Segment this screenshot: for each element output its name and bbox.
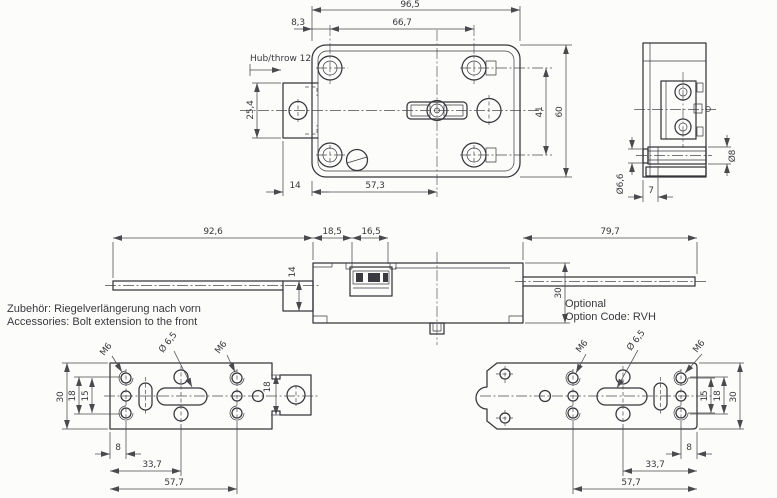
dim-front-extension: 79,7 bbox=[600, 227, 619, 237]
cover-screw bbox=[347, 150, 368, 171]
accessory-note: Zubehör: Riegelverlängerung nach vorn Ac… bbox=[7, 303, 201, 328]
plate-front-view: M6 Ø 6,5 M6 30 18 15 18 8 bbox=[56, 330, 318, 494]
dim-rod-length: 7 bbox=[648, 186, 654, 196]
note-option-code: Option Code: RVH bbox=[565, 311, 656, 323]
plate-front-holes bbox=[119, 370, 264, 421]
front-extension-rod bbox=[515, 277, 706, 286]
callout-thread-a: M6 bbox=[98, 341, 114, 358]
dim-segment-b: 16,5 bbox=[361, 227, 380, 237]
dim-rod-dia: Ø6,6 bbox=[615, 173, 626, 194]
top-view-dimensions: 96,5 8,3 66,7 Hub/throw 12 25,4 41 60 14 bbox=[246, 0, 572, 196]
label-throw: Hub/throw 12 bbox=[250, 54, 311, 64]
dim-segment-a: 18,5 bbox=[322, 227, 341, 237]
optional-note: Optional Option Code: RVH bbox=[565, 298, 656, 323]
dim-edge-offset: 8 bbox=[686, 443, 692, 453]
dim-mid-span: 33,7 bbox=[142, 460, 161, 470]
dim-edge-to-holes: 8,3 bbox=[291, 18, 305, 28]
connector-block bbox=[346, 263, 396, 296]
dim-overall-width: 96,5 bbox=[400, 0, 419, 10]
side-view-dimensions: Ø8 Ø6,6 7 bbox=[615, 135, 738, 202]
dim-bolt-height: 14 bbox=[288, 266, 298, 278]
dim-spindle-offset: 57,3 bbox=[365, 181, 384, 191]
callout-thread-a: M6 bbox=[574, 338, 590, 355]
dim-tab-height: 18 bbox=[263, 381, 273, 393]
note-accessory-de: Zubehör: Riegelverlängerung nach vorn bbox=[7, 303, 201, 315]
dim-hole-rows: 41 bbox=[535, 106, 545, 117]
callout-thread-b: M6 bbox=[213, 339, 229, 356]
dim-hole-spacing: 66,7 bbox=[392, 18, 411, 28]
dim-bolt-protrusion: 14 bbox=[289, 181, 301, 191]
callout-thread-b: M6 bbox=[691, 338, 707, 355]
dim-bolt-width: 25,4 bbox=[246, 100, 256, 120]
lock-case-inner-wall bbox=[318, 51, 514, 171]
dim-span-inner: 15 bbox=[81, 390, 91, 401]
note-accessory-en: Accessories: Bolt extension to the front bbox=[7, 316, 197, 328]
callout-hole-dia: Ø 6,5 bbox=[625, 328, 648, 353]
side-recess-panel bbox=[661, 81, 711, 139]
technical-drawing-canvas: 96,5 8,3 66,7 Hub/throw 12 25,4 41 60 14 bbox=[0, 0, 777, 498]
drawing-sheet: 96,5 8,3 66,7 Hub/throw 12 25,4 41 60 14 bbox=[0, 0, 777, 498]
dim-span-outer: 18 bbox=[68, 390, 78, 402]
note-optional: Optional bbox=[565, 298, 606, 310]
dim-span-outer: 18 bbox=[713, 390, 723, 402]
dim-case-depth: 30 bbox=[554, 287, 564, 299]
dim-plate-width: 30 bbox=[729, 391, 739, 403]
plate-rear-view: M6 Ø 6,5 M6 15 18 30 8 bbox=[476, 328, 744, 494]
dim-bolt-dia: Ø8 bbox=[727, 149, 738, 162]
dim-mid-span: 33,7 bbox=[645, 460, 664, 470]
profile-body bbox=[313, 263, 523, 323]
dim-overall-height: 60 bbox=[555, 106, 565, 118]
dim-span-inner: 15 bbox=[700, 390, 710, 401]
dim-plate-width: 30 bbox=[56, 391, 66, 403]
dim-rear-extension: 92,6 bbox=[203, 227, 223, 237]
dim-edge-offset: 8 bbox=[115, 443, 121, 453]
side-view: Ø8 Ø6,6 7 bbox=[615, 43, 738, 202]
dim-far-span: 57,7 bbox=[621, 478, 640, 488]
callout-hole-dia: Ø 6,5 bbox=[157, 330, 180, 355]
side-bolt bbox=[636, 147, 712, 176]
dim-far-span: 57,7 bbox=[164, 478, 183, 488]
top-view: 96,5 8,3 66,7 Hub/throw 12 25,4 41 60 14 bbox=[240, 0, 572, 197]
